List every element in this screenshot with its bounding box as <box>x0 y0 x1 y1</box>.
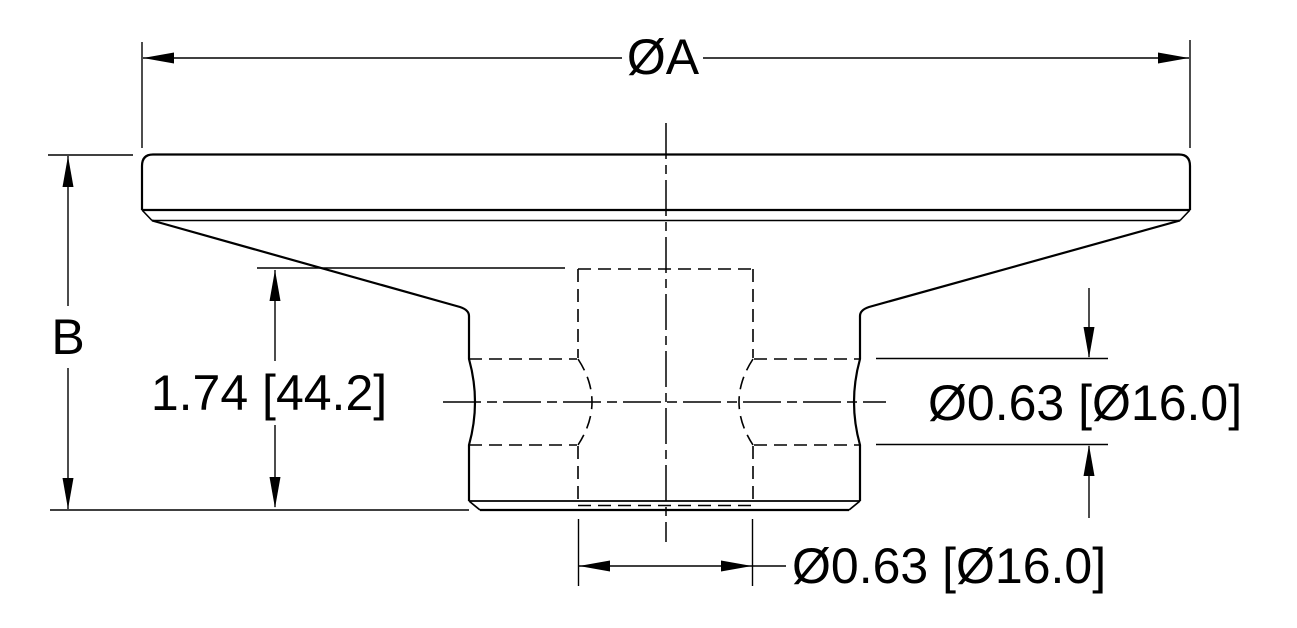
arrowhead-right <box>721 561 752 572</box>
hub-right-wall <box>854 316 860 501</box>
overall-height-label: B <box>51 309 84 365</box>
arrowhead-up <box>63 156 74 187</box>
arrowhead-up <box>1084 445 1095 476</box>
arrowhead-up <box>270 270 281 301</box>
dim-cross-hole: Ø0.63 [Ø16.0] <box>876 288 1242 518</box>
center-hole-label: Ø0.63 [Ø16.0] <box>792 538 1106 594</box>
taper-right <box>860 221 1180 317</box>
hub-bottom-right-chamfer <box>849 501 860 510</box>
dim-center-hole: Ø0.63 [Ø16.0] <box>579 519 1107 594</box>
drawing-canvas: ØA B 1.74 [44.2] Ø0.6 <box>0 0 1297 628</box>
arrowhead-down <box>63 478 74 509</box>
center-lines <box>443 123 886 542</box>
arrowhead-left <box>579 561 610 572</box>
dim-boss-height: 1.74 [44.2] <box>151 268 565 508</box>
disc-right-chamfer <box>1180 210 1190 221</box>
disc-left-chamfer <box>142 210 152 221</box>
dim-overall-height: B <box>48 155 469 510</box>
hidden-lines <box>469 269 860 506</box>
arrowhead-right <box>1158 53 1189 64</box>
arrowhead-down <box>1084 327 1095 358</box>
arrowhead-down <box>270 477 281 508</box>
cross-hole-label: Ø0.63 [Ø16.0] <box>928 375 1242 431</box>
arrowhead-left <box>143 53 174 64</box>
hub-left-wall <box>469 316 475 501</box>
boss-height-label: 1.74 [44.2] <box>151 365 387 421</box>
hub-bottom-left-chamfer <box>469 501 480 510</box>
overall-diameter-label: ØA <box>627 29 700 85</box>
